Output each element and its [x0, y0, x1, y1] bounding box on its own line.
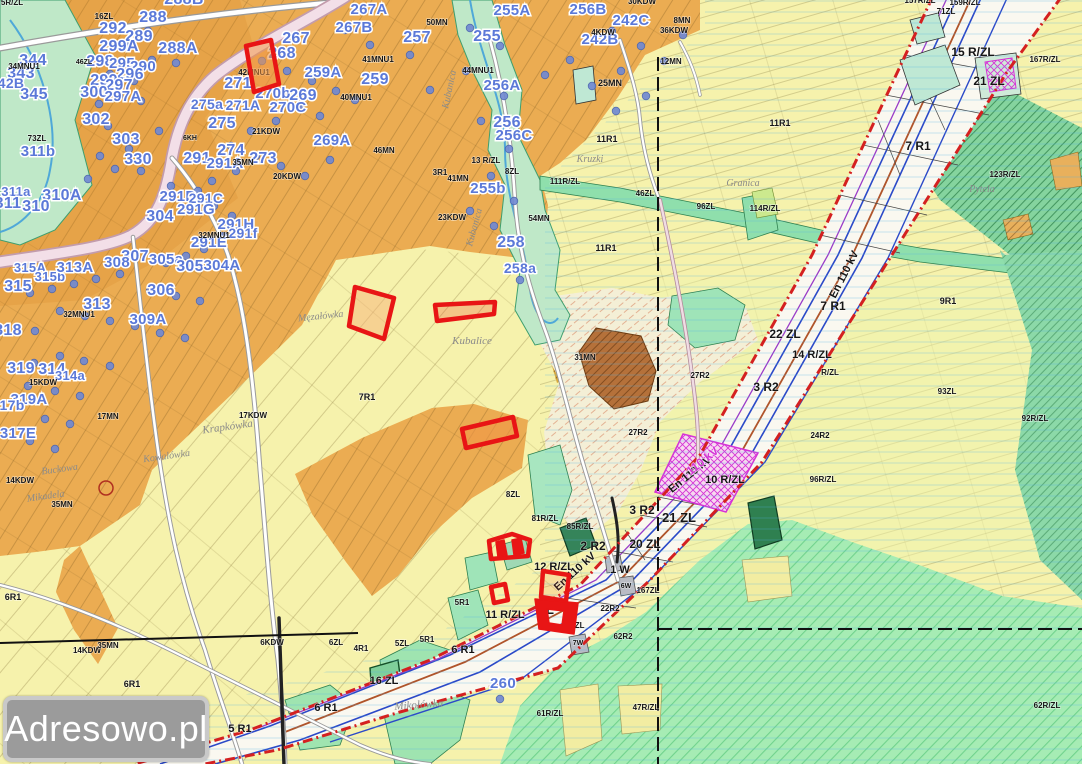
map-label: 317b — [0, 397, 25, 413]
map-label: 92R/ZL — [1022, 414, 1049, 423]
map-label: 27R2 — [690, 371, 710, 380]
address-point — [84, 175, 92, 183]
map-label: 81R/ZL — [532, 514, 559, 523]
map-label: 35MN — [97, 641, 119, 650]
map-label: 96ZL — [697, 202, 716, 211]
map-label: 258 — [497, 234, 525, 251]
address-point — [156, 329, 164, 337]
map-label: 34MNU1 — [8, 62, 40, 71]
map-label: 308 — [104, 254, 130, 271]
map-label: 3 R2 — [753, 380, 779, 394]
address-point — [56, 352, 64, 360]
map-label: 41MNU1 — [362, 55, 394, 64]
address-point — [612, 107, 620, 115]
map-label: 93ZL — [938, 387, 957, 396]
map-label: 297A — [104, 88, 141, 105]
map-label: 291f — [228, 225, 257, 241]
map-label: 256B — [569, 1, 606, 18]
map-label: 6R1 — [5, 592, 22, 602]
map-label: 21KDW — [252, 127, 280, 136]
map-label: 32MNU1 — [198, 231, 230, 240]
address-point — [406, 51, 414, 59]
map-label: 24R2 — [810, 431, 830, 440]
map-label: 46ZL — [76, 59, 93, 66]
map-label: 6 R1 — [451, 644, 474, 656]
map-label: R/ZL — [821, 368, 839, 377]
map-label: 255 — [473, 28, 501, 45]
map-label: 23KDW — [438, 213, 466, 222]
map-label: 15 R/ZL — [951, 45, 994, 59]
address-point — [637, 42, 645, 50]
map-label: 17MN — [97, 412, 119, 421]
address-point — [505, 145, 513, 153]
map-label: 267A — [350, 1, 387, 18]
address-point — [41, 415, 49, 423]
map-label: 1 W — [610, 564, 630, 576]
map-label: 330 — [124, 151, 152, 168]
map-label: 306 — [147, 282, 175, 299]
map-label: 41MN — [447, 174, 469, 183]
map-label: 292 — [99, 20, 127, 37]
map-label: 271 — [224, 75, 252, 92]
map-label: 310 — [22, 198, 50, 215]
map-label: 317E — [0, 425, 36, 442]
map-label: 6R1 — [124, 679, 141, 689]
map-label: 9R1 — [940, 296, 957, 306]
map-label: 8ZL — [505, 167, 519, 176]
map-label: 302 — [82, 111, 110, 128]
map-label: 275 — [208, 115, 236, 132]
map-label: 7R1 — [359, 392, 376, 402]
map-label: 275a — [191, 96, 223, 112]
map-label: 274 — [217, 142, 245, 159]
map-label: 46MN — [373, 146, 395, 155]
address-point — [106, 317, 114, 325]
map-label: 47R/ZL — [633, 703, 660, 712]
map-label: 6KDW — [260, 638, 284, 647]
highlighted-parcel[interactable] — [512, 538, 524, 555]
map-label: 71ZL — [937, 7, 956, 16]
zoning-map[interactable]: 288B288292289299A288A2982952902962992973… — [0, 0, 1082, 764]
map-label: 2 R2 — [580, 539, 606, 553]
map-label: 15KDW — [29, 378, 57, 387]
map-label: 7 R1 — [905, 139, 931, 153]
map-label: 345 — [20, 86, 48, 103]
map-label: 50MN — [426, 18, 448, 27]
address-point — [196, 297, 204, 305]
address-point — [426, 86, 434, 94]
map-label: 258a — [504, 260, 536, 276]
map-label: 304 — [146, 208, 174, 225]
map-label: 309A — [129, 311, 166, 328]
map-label: 16 ZL — [370, 675, 399, 687]
map-label: 61R/ZL — [537, 709, 564, 718]
map-label: 11R1 — [596, 134, 617, 144]
map-label: 32MNU1 — [63, 310, 95, 319]
map-label: 6W — [621, 583, 632, 590]
address-point — [181, 334, 189, 342]
map-label: 314a — [55, 368, 86, 383]
address-point — [66, 420, 74, 428]
map-label: 5ZL — [395, 639, 409, 648]
map-label: 36KDW — [660, 26, 688, 35]
map-label: 3 R2 — [629, 503, 655, 517]
address-point — [496, 695, 504, 703]
map-label: 14KDW — [6, 476, 34, 485]
address-point — [106, 362, 114, 370]
map-label: 6 R1 — [314, 702, 337, 714]
address-point — [366, 41, 374, 49]
address-point — [588, 82, 596, 90]
address-point — [208, 177, 216, 185]
address-point — [155, 127, 163, 135]
address-point — [92, 275, 100, 283]
map-label: 73ZL — [28, 134, 47, 143]
map-label: 46ZL — [636, 189, 655, 198]
map-label: 318 — [0, 322, 22, 339]
map-label: 21 ZL — [662, 510, 696, 525]
address-point — [283, 67, 291, 75]
map-label: 269A — [313, 132, 350, 149]
map-label: 10 R/ZL — [705, 474, 745, 486]
map-label: 5 R1 — [228, 723, 251, 735]
map-label: Kruzki — [576, 154, 604, 165]
map-label: 319 — [7, 360, 35, 377]
map-label: 27R2 — [628, 428, 648, 437]
map-label: 259A — [304, 64, 341, 81]
map-label: 5R1 — [455, 598, 470, 607]
address-point — [490, 222, 498, 230]
address-point — [301, 172, 309, 180]
map-label: 256A — [483, 77, 520, 94]
address-point — [172, 59, 180, 67]
map-label: 257 — [403, 29, 431, 46]
map-label: 22 ZL — [769, 327, 800, 341]
map-viewport[interactable]: 288B288292289299A288A2982952902962992973… — [0, 0, 1082, 764]
map-label: 21 ZL — [973, 74, 1004, 88]
address-point — [137, 167, 145, 175]
map-label: 11R1 — [595, 243, 616, 253]
map-label: 313A — [56, 259, 93, 276]
map-label: Pytela — [968, 184, 995, 195]
address-point — [316, 112, 324, 120]
address-point — [70, 280, 78, 288]
map-label: 315 — [4, 278, 32, 295]
address-point — [477, 117, 485, 125]
map-label: 62R2 — [613, 632, 633, 641]
map-label: 288 — [139, 9, 167, 26]
address-point — [332, 87, 340, 95]
map-label: 11 R/ZL — [485, 609, 524, 621]
map-label: 5R/ZL — [1, 0, 23, 7]
map-label: 288B — [164, 0, 203, 8]
address-point — [617, 67, 625, 75]
map-label: 35MN — [232, 158, 254, 167]
map-label: 25MN — [598, 78, 622, 88]
address-point — [51, 387, 59, 395]
map-label: 11R1 — [769, 118, 790, 128]
map-label: 311 — [0, 195, 21, 212]
map-label: 270C — [269, 99, 306, 116]
map-label: 255A — [493, 2, 530, 19]
map-label: 8MN — [674, 16, 691, 25]
highlighted-parcel[interactable] — [246, 40, 279, 92]
address-point — [116, 270, 124, 278]
map-label: 111R/ZL — [550, 177, 580, 186]
map-label: 20 ZL — [629, 537, 660, 551]
map-label: 8ZL — [506, 490, 520, 499]
map-label: 7W — [573, 640, 584, 647]
adresowo-watermark: Adresowo.pl — [3, 696, 209, 762]
address-point — [642, 92, 650, 100]
map-label: 242C — [612, 12, 649, 29]
map-label: 6ZL — [329, 638, 343, 647]
map-label: 7 R1 — [820, 299, 846, 313]
address-point — [95, 100, 103, 108]
map-label: 22R2 — [600, 604, 620, 613]
map-label: 256C — [495, 127, 532, 144]
map-label: 54MN — [528, 214, 550, 223]
address-point — [541, 71, 549, 79]
map-label: 44MNU1 — [462, 66, 494, 75]
map-label: 267B — [335, 19, 372, 36]
map-label: 288A — [158, 40, 198, 57]
address-point — [48, 285, 56, 293]
map-label: 5R1 — [420, 635, 435, 644]
address-point — [272, 117, 280, 125]
map-label: 14 R/ZL — [792, 349, 832, 361]
map-label: 114R/ZL — [750, 204, 781, 213]
map-label: 259 — [361, 71, 389, 88]
map-label: 3R1 — [433, 168, 448, 177]
map-label: 6KH — [183, 135, 197, 142]
map-label: 123R/ZL — [989, 170, 1020, 179]
address-point — [51, 445, 59, 453]
address-point — [566, 56, 574, 64]
map-label: 35MN — [51, 500, 73, 509]
address-point — [516, 276, 524, 284]
address-point — [326, 156, 334, 164]
map-label: 96R/ZL — [810, 475, 837, 484]
map-label: 159R/ZL — [949, 0, 980, 7]
map-label: 30KDW — [628, 0, 656, 6]
map-label: 167R/ZL — [1029, 55, 1060, 64]
address-point — [487, 172, 495, 180]
address-point — [31, 327, 39, 335]
map-label: 304A — [203, 257, 240, 274]
address-point — [76, 392, 84, 400]
map-label: 62R/ZL — [1034, 701, 1061, 710]
map-label: 157R/ZL — [904, 0, 935, 5]
map-label: 291G — [177, 201, 215, 218]
map-label: 311b — [21, 143, 56, 160]
map-label: 31MN — [574, 353, 596, 362]
map-label: 13 R/ZL — [472, 156, 501, 165]
map-label: 260 — [490, 675, 516, 692]
address-point — [277, 162, 285, 170]
address-point — [96, 152, 104, 160]
address-point — [80, 357, 88, 365]
map-label: 85R/ZL — [567, 522, 594, 531]
map-label: 40MNU1 — [340, 93, 372, 102]
map-label: 255b — [470, 180, 505, 197]
map-label: 4R1 — [354, 644, 369, 653]
map-label: 167ZL — [636, 586, 659, 595]
highlighted-parcel[interactable] — [541, 571, 569, 601]
map-label: Kubalice — [451, 335, 492, 347]
map-label: 303 — [112, 131, 140, 148]
map-label: 305 — [176, 258, 204, 275]
map-label: 16ZL — [95, 12, 114, 21]
address-point — [510, 197, 518, 205]
map-label: 12MN — [660, 57, 682, 66]
address-point — [111, 165, 119, 173]
watermark-text: Adresowo.pl — [4, 708, 208, 750]
map-label: 20KDW — [273, 172, 301, 181]
map-label: 4KDW — [591, 28, 615, 37]
map-label: Granica — [726, 178, 759, 189]
